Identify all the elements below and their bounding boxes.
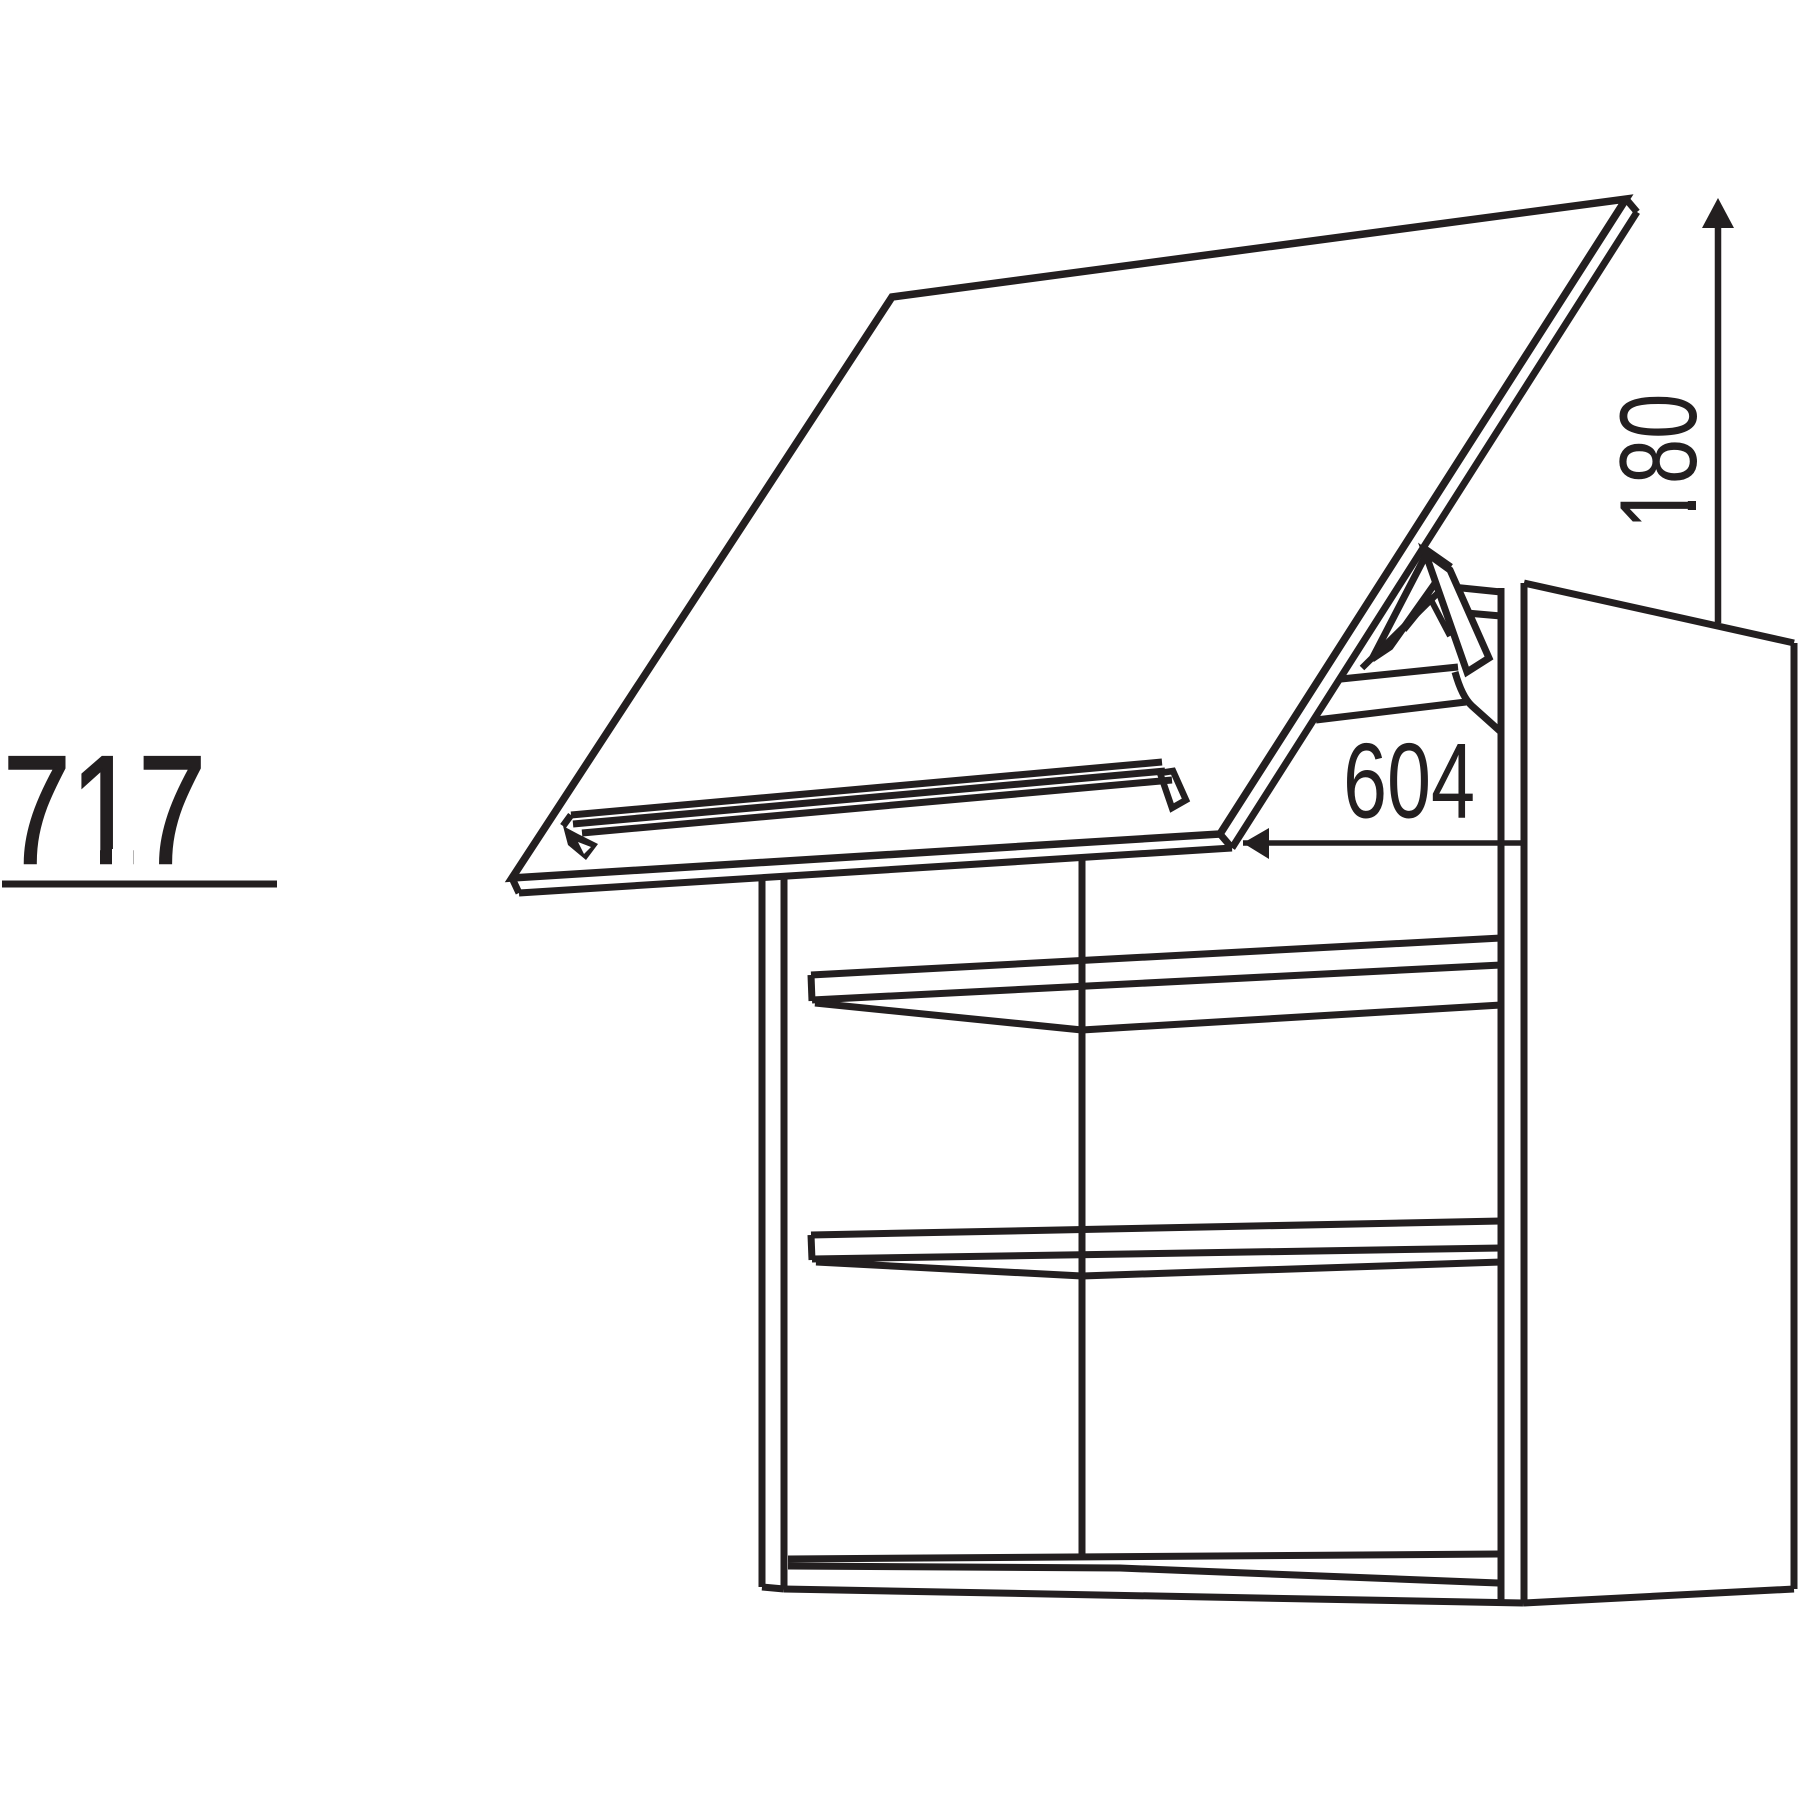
svg-text:717: 717	[3, 724, 206, 896]
svg-text:180: 180	[1596, 394, 1720, 530]
svg-text:604: 604	[1343, 721, 1475, 840]
